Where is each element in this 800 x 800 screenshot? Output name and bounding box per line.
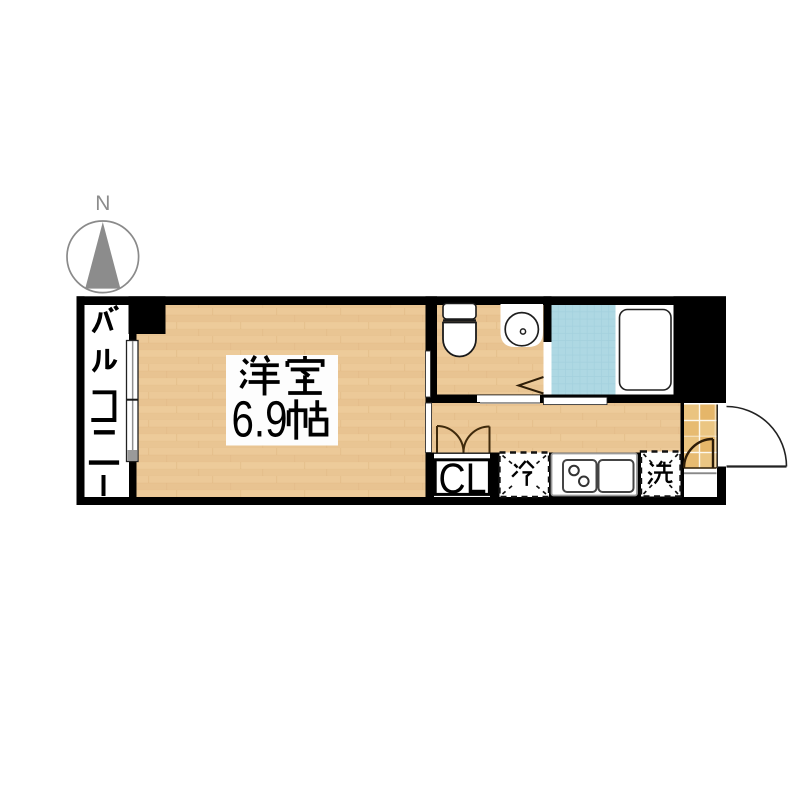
svg-text:6.9: 6.9 [232, 391, 288, 448]
svg-text:CL: CL [439, 455, 487, 503]
svg-text:N: N [95, 192, 110, 215]
